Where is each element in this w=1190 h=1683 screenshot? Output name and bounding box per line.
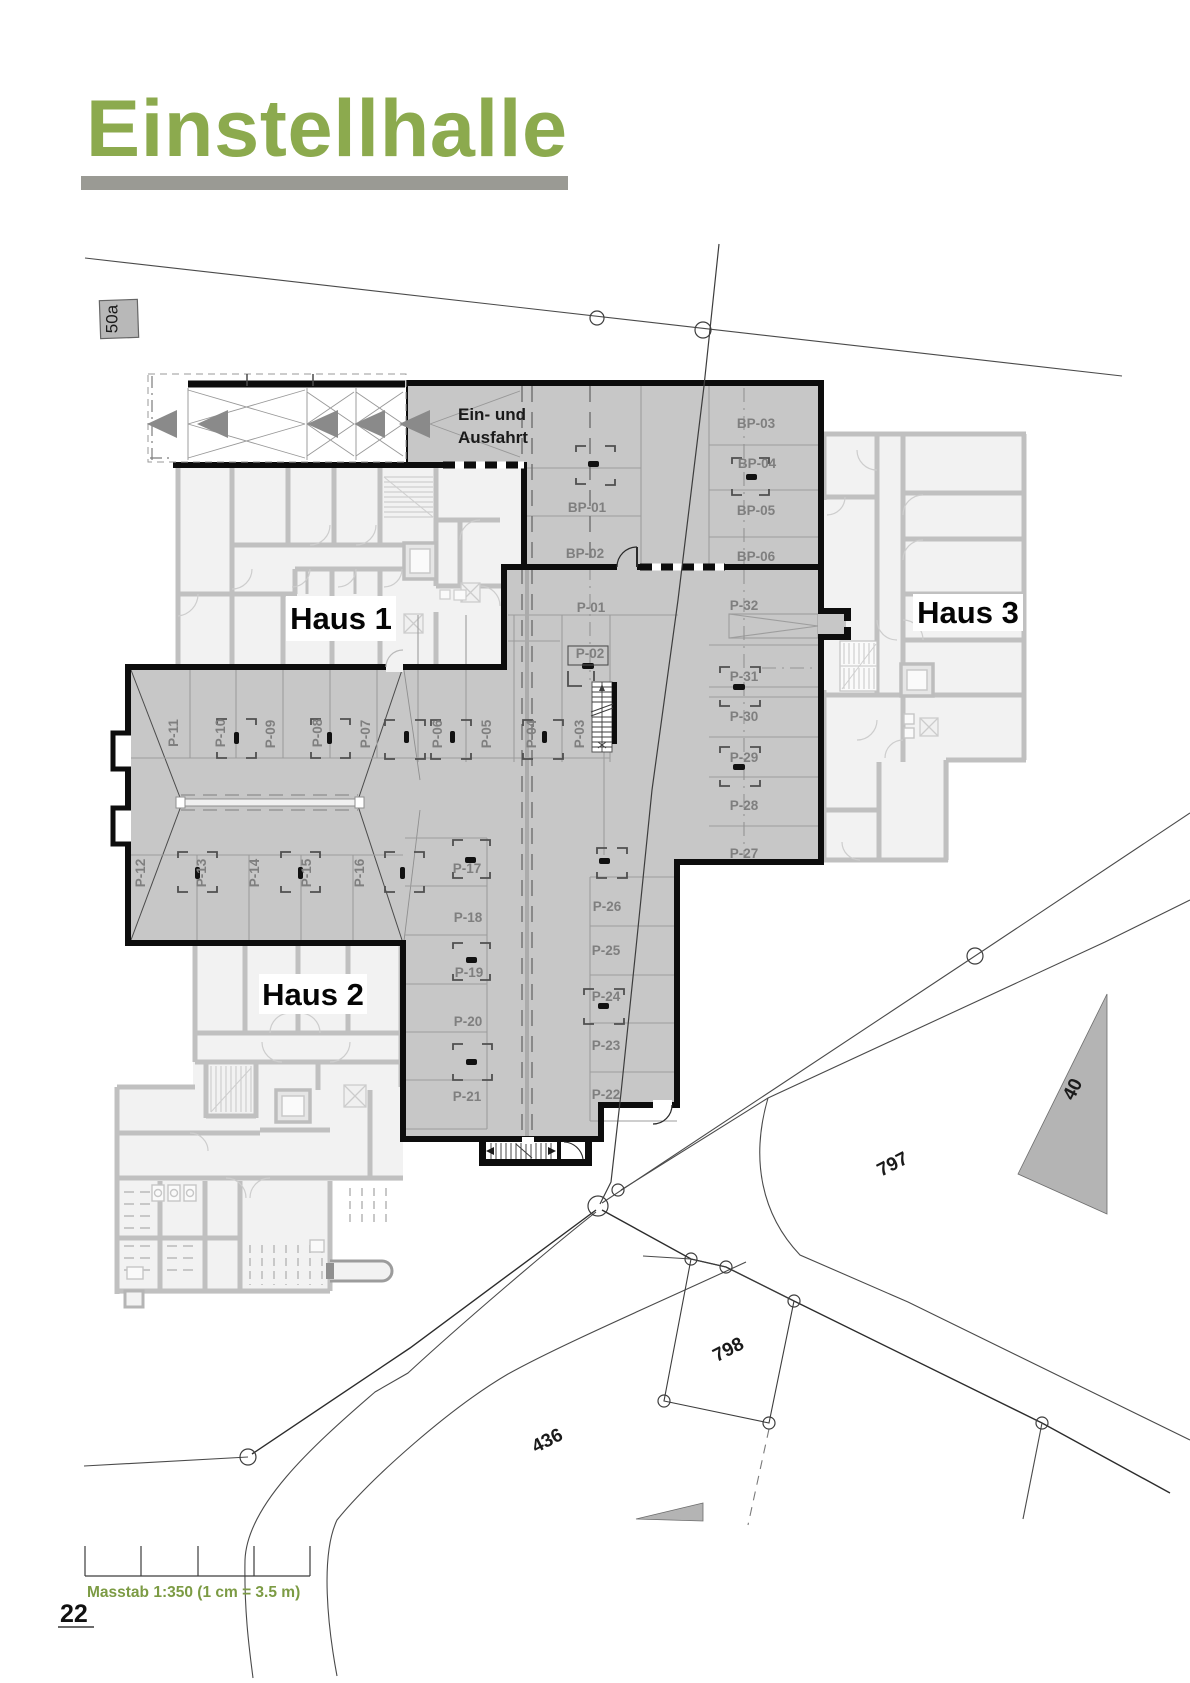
svg-text:P-07: P-07: [358, 720, 373, 749]
svg-text:BP-06: BP-06: [737, 549, 776, 564]
svg-text:BP-03: BP-03: [737, 416, 776, 431]
svg-text:P-05: P-05: [479, 719, 494, 748]
svg-text:P-25: P-25: [592, 943, 621, 958]
svg-text:P-22: P-22: [592, 1087, 621, 1102]
svg-text:P-18: P-18: [454, 910, 483, 925]
svg-text:P-26: P-26: [593, 899, 622, 914]
svg-text:50a: 50a: [102, 304, 121, 333]
svg-text:P-28: P-28: [730, 798, 759, 813]
svg-text:P-31: P-31: [730, 669, 759, 684]
svg-text:P-04: P-04: [524, 719, 539, 748]
svg-text:Einstellhalle: Einstellhalle: [86, 84, 568, 174]
svg-text:P-24: P-24: [592, 989, 621, 1004]
svg-text:Ein- und: Ein- und: [458, 405, 526, 424]
svg-text:P-11: P-11: [166, 719, 181, 747]
svg-text:BP-04: BP-04: [738, 456, 777, 471]
svg-text:P-32: P-32: [730, 598, 759, 613]
svg-text:P-09: P-09: [263, 720, 278, 749]
svg-text:BP-02: BP-02: [566, 546, 604, 561]
svg-text:P-15: P-15: [299, 858, 314, 887]
svg-text:P-23: P-23: [592, 1038, 621, 1053]
svg-text:P-17: P-17: [453, 861, 482, 876]
svg-text:P-29: P-29: [730, 750, 759, 765]
svg-text:BP-05: BP-05: [737, 503, 776, 518]
svg-text:P-01: P-01: [577, 600, 606, 615]
svg-text:BP-01: BP-01: [568, 500, 607, 515]
svg-text:Masstab 1:350 (1 cm = 3.5 m): Masstab 1:350 (1 cm = 3.5 m): [87, 1584, 300, 1601]
svg-text:Haus 3: Haus 3: [917, 595, 1019, 630]
svg-text:P-02: P-02: [576, 646, 605, 661]
svg-text:P-16: P-16: [352, 858, 367, 887]
svg-text:Ausfahrt: Ausfahrt: [458, 428, 528, 447]
svg-text:22: 22: [60, 1600, 88, 1628]
svg-text:P-20: P-20: [454, 1014, 483, 1029]
svg-text:P-21: P-21: [453, 1089, 482, 1104]
svg-text:P-06: P-06: [430, 719, 445, 748]
svg-text:Haus 1: Haus 1: [290, 601, 392, 636]
svg-text:P-14: P-14: [247, 858, 262, 887]
svg-text:P-08: P-08: [310, 718, 325, 747]
svg-text:Haus 2: Haus 2: [262, 977, 364, 1012]
svg-text:P-12: P-12: [133, 859, 148, 888]
svg-text:P-03: P-03: [572, 719, 587, 748]
svg-text:P-27: P-27: [730, 846, 759, 861]
svg-text:P-10: P-10: [213, 719, 228, 748]
svg-text:P-30: P-30: [730, 709, 759, 724]
svg-text:P-13: P-13: [194, 858, 209, 887]
svg-text:P-19: P-19: [455, 965, 484, 980]
